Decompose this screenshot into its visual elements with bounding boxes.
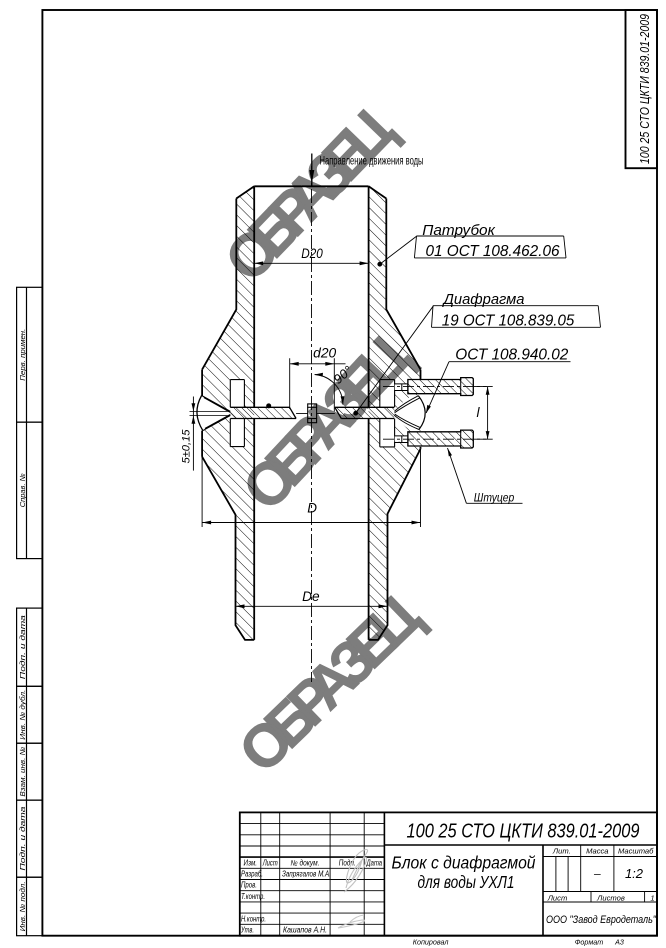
svg-text:01 ОСТ 108.462.06: 01 ОСТ 108.462.06 [426, 243, 560, 260]
svg-text:ОСТ 108.940.02: ОСТ 108.940.02 [455, 347, 568, 364]
svg-text:Формат: Формат [575, 938, 604, 947]
svg-text:Масштаб: Масштаб [618, 847, 654, 856]
svg-text:Лист: Лист [547, 893, 568, 902]
svg-text:Лист: Лист [262, 858, 278, 867]
svg-text:№ докум.: № докум. [291, 858, 320, 867]
svg-text:Пров.: Пров. [241, 881, 257, 890]
svg-text:Инв. № дубл.: Инв. № дубл. [18, 690, 27, 740]
svg-text:D20: D20 [301, 246, 323, 261]
svg-text:Подп. и дата: Подп. и дата [18, 807, 27, 871]
svg-text:Запрягалов М.А.: Запрягалов М.А. [282, 870, 331, 879]
svg-text:19 ОСТ 108.839.05: 19 ОСТ 108.839.05 [442, 313, 575, 330]
svg-text:Блок с диафрагмой: Блок с диафрагмой [392, 852, 536, 872]
svg-text:1:2: 1:2 [625, 866, 644, 881]
svg-text:Штуцер: Штуцер [474, 490, 515, 504]
svg-text:Утв.: Утв. [240, 926, 254, 935]
svg-text:Подп. и дата: Подп. и дата [18, 615, 27, 679]
svg-text:Справ. №: Справ. № [18, 473, 27, 507]
svg-text:А3: А3 [614, 938, 624, 947]
svg-text:–: – [593, 867, 601, 881]
svg-text:Патрубок: Патрубок [422, 223, 496, 239]
svg-text:Инв. № подл.: Инв. № подл. [18, 881, 27, 931]
svg-text:Т.контр.: Т.контр. [241, 892, 265, 901]
svg-text:Перв. примен.: Перв. примен. [18, 329, 27, 381]
svg-text:100 25 СТО ЦКТИ 839.01-2009: 100 25 СТО ЦКТИ 839.01-2009 [407, 821, 640, 843]
svg-text:Изм.: Изм. [244, 858, 258, 867]
svg-text:Копировал: Копировал [413, 938, 449, 947]
svg-text:Лит.: Лит. [552, 847, 571, 856]
svg-text:Масса: Масса [586, 847, 608, 856]
svg-text:для воды УХЛ1: для воды УХЛ1 [418, 872, 515, 892]
svg-text:5±0,15: 5±0,15 [181, 428, 193, 463]
svg-text:ООО "Завод Евродеталь": ООО "Завод Евродеталь" [546, 914, 657, 926]
svg-text:100 25 СТО ЦКТИ 839.01-2009: 100 25 СТО ЦКТИ 839.01-2009 [638, 14, 652, 164]
svg-text:D: D [307, 501, 317, 516]
svg-text:Диафрагма: Диафрагма [441, 292, 524, 308]
svg-text:ОБРАЗЕЦ: ОБРАЗЕЦ [226, 582, 433, 785]
svg-text:De: De [302, 589, 320, 604]
svg-text:Кашапов А.Н.: Кашапов А.Н. [283, 926, 327, 935]
svg-text:l: l [477, 405, 481, 420]
svg-text:Разраб.: Разраб. [241, 870, 263, 879]
svg-text:Дата: Дата [366, 858, 383, 867]
svg-text:Листов: Листов [596, 893, 625, 902]
svg-text:d20: d20 [313, 345, 336, 360]
svg-text:1: 1 [650, 893, 654, 902]
svg-text:Н.контр.: Н.контр. [241, 914, 266, 923]
svg-text:Взам. инв. №: Взам. инв. № [18, 747, 27, 797]
